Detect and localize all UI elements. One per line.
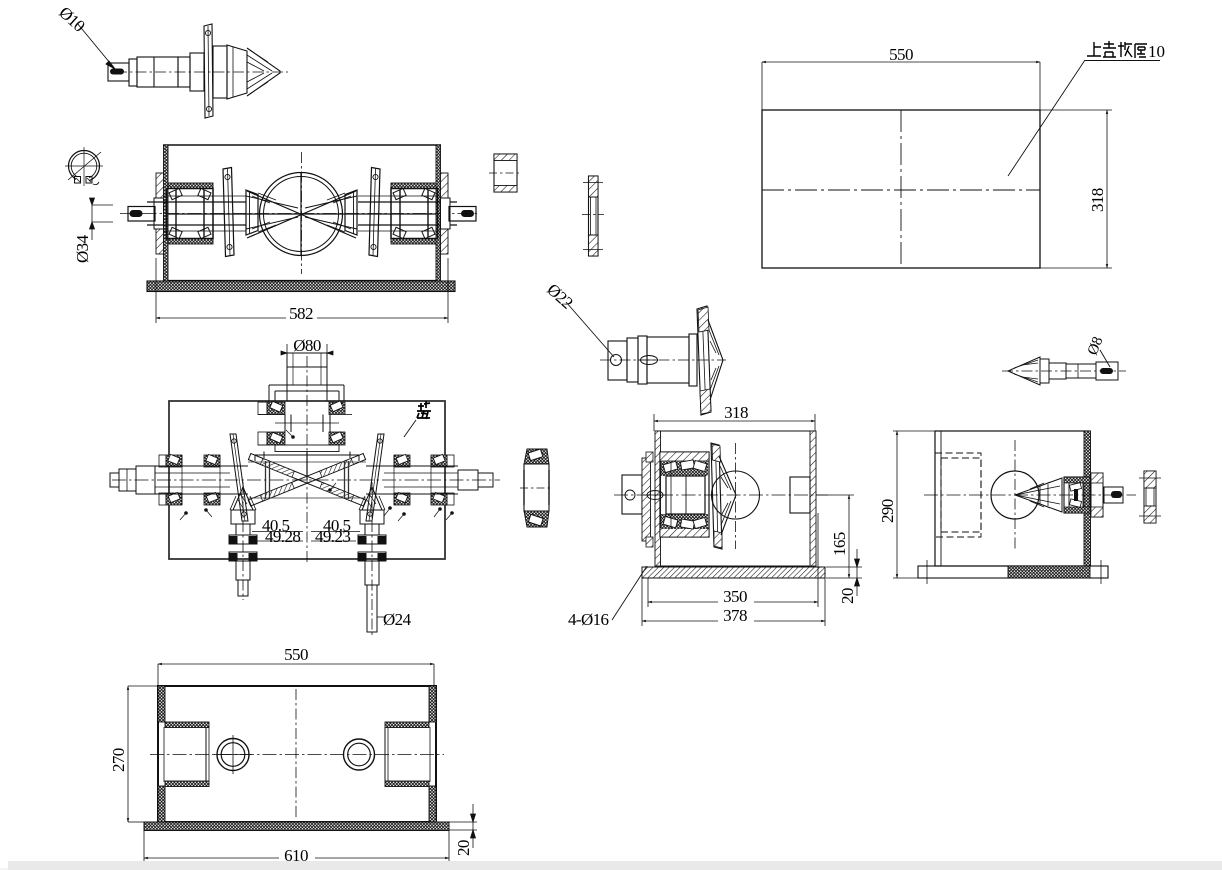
svg-text:10: 10 — [1148, 42, 1165, 61]
svg-text:550: 550 — [889, 45, 913, 64]
svg-text:Ø34: Ø34 — [73, 234, 92, 263]
svg-text:49.28: 49.28 — [265, 527, 300, 546]
svg-text:20: 20 — [454, 840, 473, 856]
svg-text:20: 20 — [838, 588, 857, 604]
svg-text:270: 270 — [109, 748, 128, 772]
svg-text:350: 350 — [723, 587, 747, 606]
svg-text:49.23: 49.23 — [315, 527, 350, 546]
svg-text:165: 165 — [830, 532, 849, 556]
svg-text:290: 290 — [878, 499, 897, 523]
svg-text:Ø24: Ø24 — [383, 610, 412, 629]
svg-text:378: 378 — [723, 606, 747, 625]
svg-text:4-Ø16: 4-Ø16 — [568, 610, 609, 629]
svg-text:318: 318 — [1088, 188, 1107, 212]
svg-text:318: 318 — [724, 403, 748, 422]
svg-text:Ø22: Ø22 — [543, 280, 576, 313]
svg-text:550: 550 — [284, 645, 308, 664]
svg-text:Ø80: Ø80 — [293, 336, 321, 355]
svg-text:582: 582 — [289, 304, 313, 323]
svg-text:Ø8: Ø8 — [1085, 334, 1107, 357]
